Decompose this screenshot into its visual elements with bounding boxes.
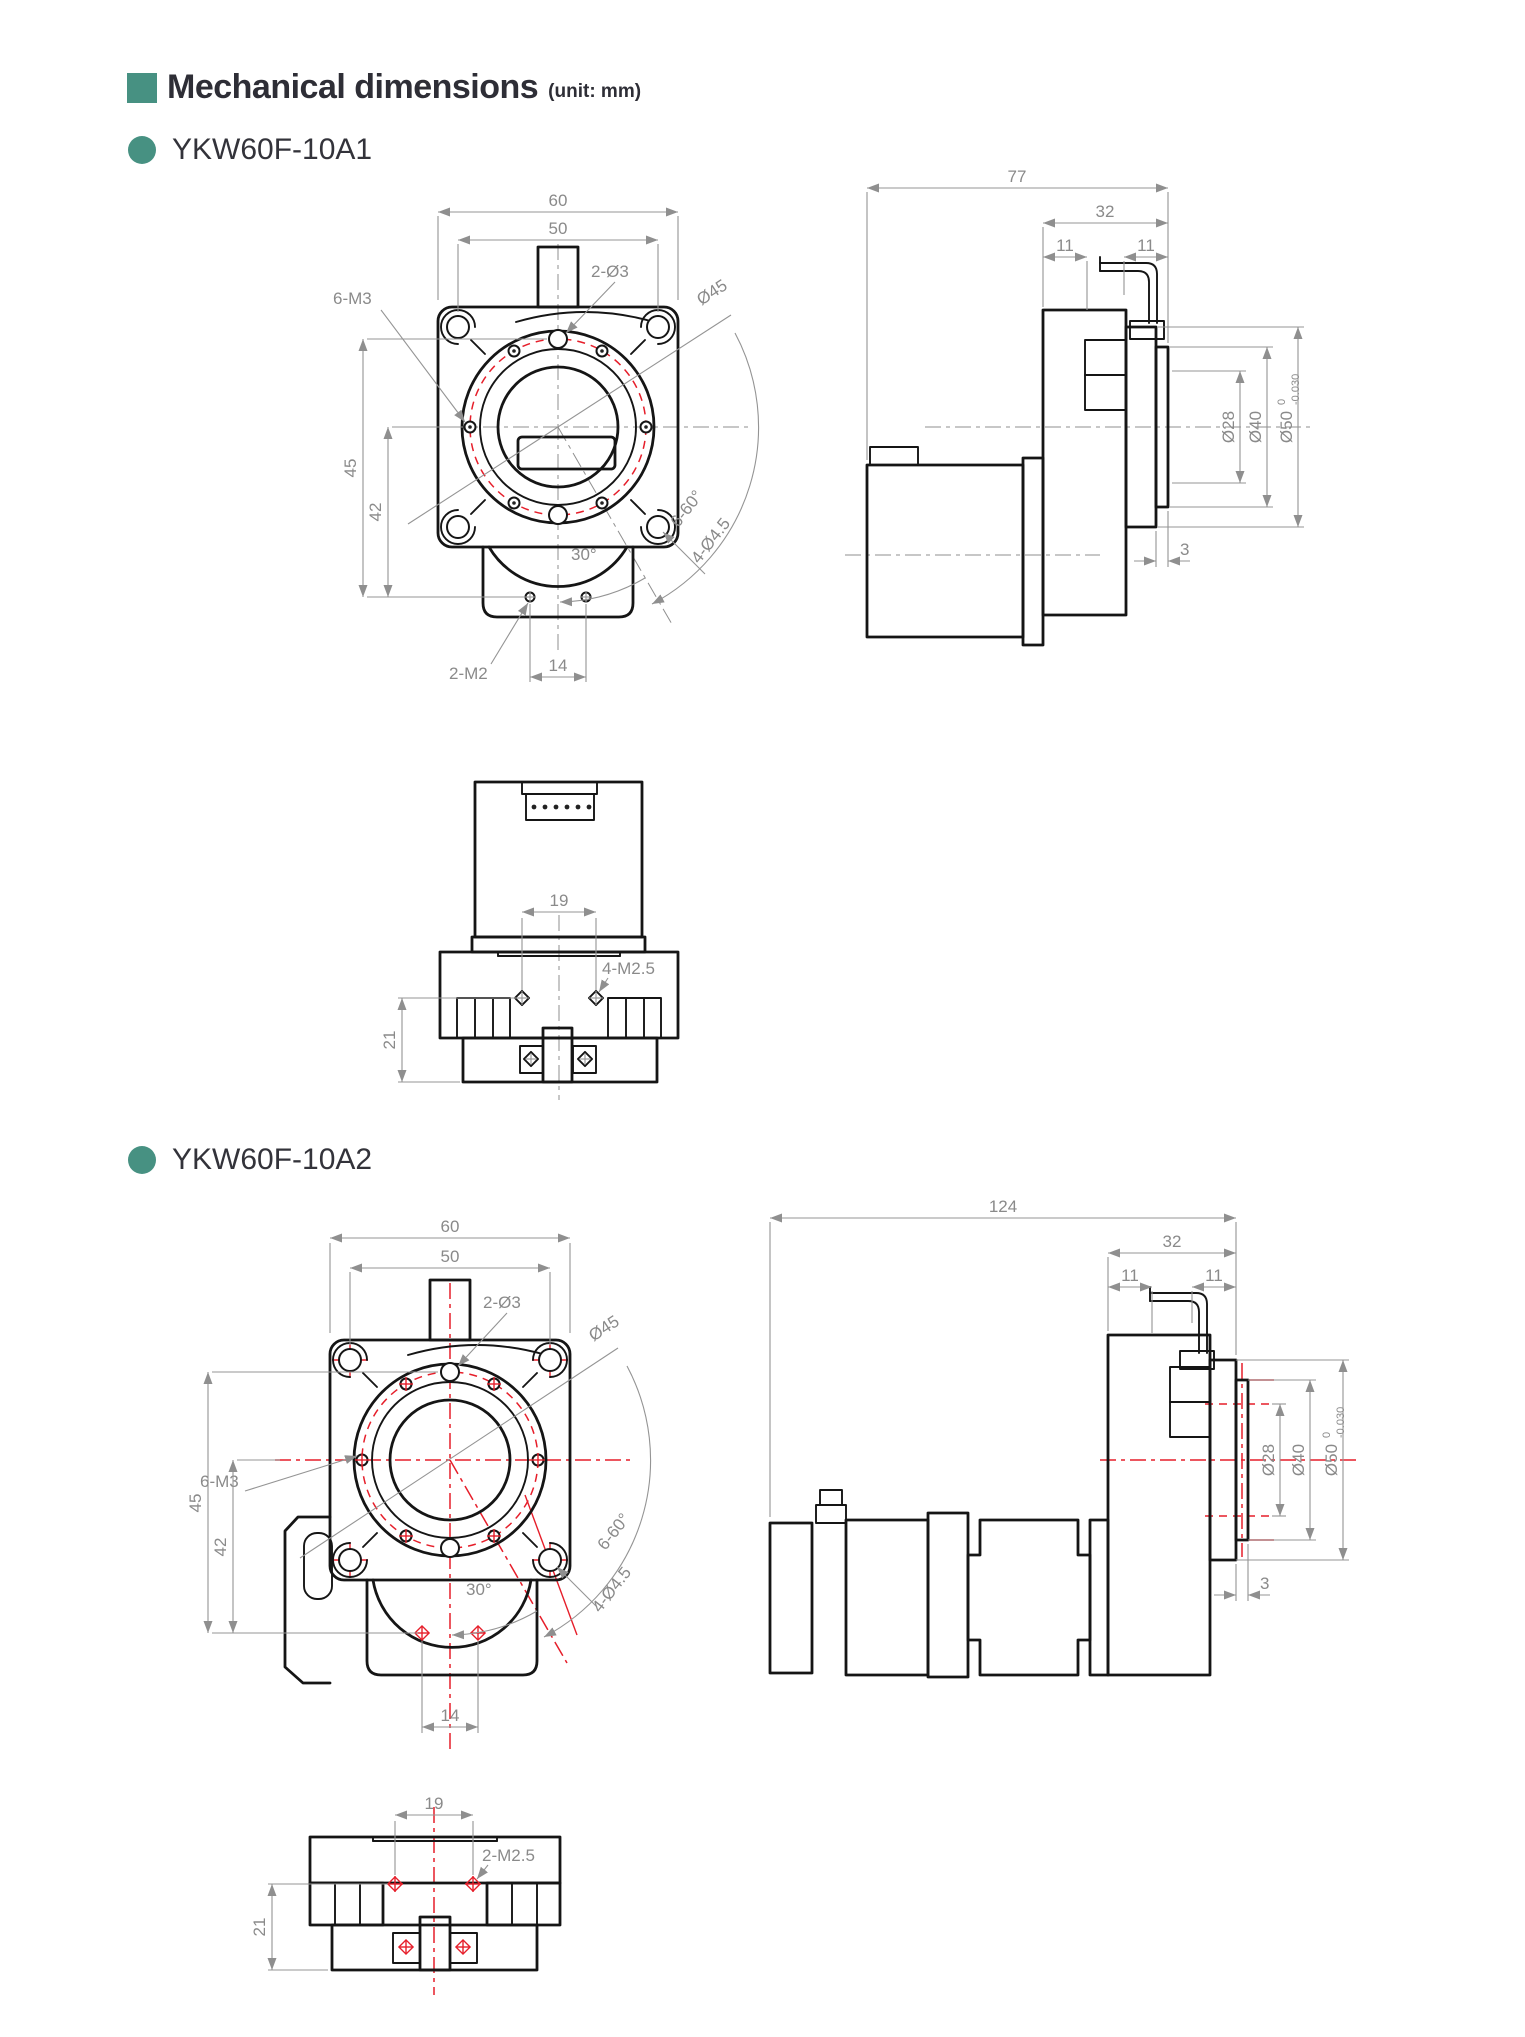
dim-label-60: 60	[441, 1217, 460, 1236]
dimension-11-left: 11	[1043, 236, 1087, 310]
dim-label-45: 45	[341, 459, 360, 478]
section-header-10a1: YKW60F-10A1	[128, 133, 372, 167]
red-centerlines	[1100, 1363, 1360, 1557]
dim-label-3: 3	[1180, 540, 1189, 559]
front-view-ykw60f-10a1: 60 50 2-Ø3 Ø45 6-M3 45 42 30° 6-60° 4-Ø4…	[323, 182, 773, 727]
dim-label-660: 6-60°	[594, 1510, 634, 1554]
bullet-icon	[128, 136, 156, 164]
dim-label-32: 32	[1163, 1232, 1182, 1251]
dim-label-2m2: 2-M2	[449, 664, 488, 683]
side-view-ykw60f-10a1: 77 32 11 11 Ø28 Ø40 Ø50 0 -0.030	[830, 175, 1350, 675]
dim-label-14: 14	[441, 1706, 460, 1725]
section-header-10a2: YKW60F-10A2	[128, 1143, 372, 1177]
label-2xd3: 2-Ø3	[458, 1293, 521, 1366]
section-title-10a2: YKW60F-10A2	[172, 1143, 372, 1177]
flange-outline	[285, 1280, 570, 1683]
label-4m25: 4-M2.5	[599, 959, 655, 992]
dim-label-4d45: 4-Ø4.5	[588, 1563, 635, 1616]
dimension-45: 45	[186, 1372, 438, 1633]
dim-label-4m25: 4-M2.5	[602, 959, 655, 978]
dim-label-11a: 11	[1121, 1266, 1139, 1285]
bottom-view-ykw60f-10a2: 19 2-M2.5 21	[250, 1795, 640, 2037]
dim-label-4d45: 4-Ø4.5	[687, 514, 734, 567]
dim-label-14: 14	[549, 656, 568, 675]
gearbox-body	[1108, 1335, 1248, 1675]
dim-label-d50-tol-up: 0	[1321, 1432, 1333, 1438]
section-title-10a1: YKW60F-10A1	[172, 133, 372, 167]
dim-label-d45: Ø45	[693, 276, 730, 309]
dim-label-124: 124	[989, 1197, 1017, 1216]
dim-label-2d3: 2-Ø3	[591, 262, 629, 281]
dimension-77: 77	[867, 167, 1168, 460]
bullet-icon	[128, 1146, 156, 1174]
dimension-11-left: 11	[1108, 1266, 1152, 1333]
motor-body	[867, 447, 1043, 645]
dim-label-6m3: 6-M3	[333, 289, 372, 308]
dim-label-11b: 11	[1137, 236, 1155, 255]
dimension-21: 21	[250, 1884, 388, 1970]
page-title: Mechanical dimensions	[167, 68, 538, 107]
page-header: Mechanical dimensions (unit: mm)	[127, 68, 641, 107]
dim-label-42: 42	[366, 503, 385, 522]
dim-label-d45: Ø45	[585, 1312, 622, 1345]
dim-label-d28: Ø28	[1219, 411, 1238, 443]
bottom-view-ykw60f-10a1: 19 4-M2.5 21	[380, 760, 710, 1110]
dim-label-d50-tol-dn: -0.030	[1290, 374, 1302, 405]
dim-label-30: 30°	[466, 1580, 492, 1599]
dim-label-d50-tol-up: 0	[1276, 399, 1288, 405]
label-6m3: 6-M3	[200, 1456, 357, 1491]
dimension-11-right: 11	[1124, 236, 1168, 295]
dim-label-19: 19	[425, 1794, 444, 1813]
dim-label-50: 50	[441, 1247, 460, 1266]
dim-label-d28: Ø28	[1259, 1444, 1278, 1476]
dim-label-3: 3	[1260, 1574, 1269, 1593]
dim-label-45: 45	[186, 1494, 205, 1513]
dimension-3: 3	[1134, 511, 1190, 567]
dimension-21: 21	[380, 998, 516, 1082]
dim-label-32: 32	[1096, 202, 1115, 221]
gearbox-body	[1043, 310, 1168, 615]
dim-label-2d3: 2-Ø3	[483, 1293, 521, 1312]
dim-label-21: 21	[380, 1031, 399, 1050]
dim-label-2m25: 2-M2.5	[482, 1846, 535, 1865]
label-2xd3: 2-Ø3	[566, 262, 629, 333]
dimension-19: 19	[395, 1794, 473, 1875]
dim-label-42: 42	[211, 1538, 230, 1557]
connector	[522, 782, 597, 820]
label-2m25: 2-M2.5	[477, 1846, 535, 1879]
dim-label-77: 77	[1008, 167, 1027, 186]
dim-label-30: 30°	[571, 545, 597, 564]
dim-label-60: 60	[549, 191, 568, 210]
header-square-icon	[127, 73, 157, 103]
dim-label-11b: 11	[1205, 1266, 1223, 1285]
dim-label-660: 6-60°	[667, 487, 707, 531]
cable-hook	[1150, 1287, 1214, 1369]
dim-label-21: 21	[250, 1918, 269, 1937]
dim-label-d50-tol-dn: -0.030	[1335, 1407, 1347, 1438]
page-unit: (unit: mm)	[548, 81, 641, 103]
dim-label-50: 50	[549, 219, 568, 238]
angle-30: 30°	[452, 1580, 537, 1635]
dim-label-d50: Ø50	[1277, 411, 1296, 443]
dim-label-19: 19	[550, 891, 569, 910]
front-view-ykw60f-10a2: 60 50 2-Ø3 Ø45 6-M3 45 42 30° 6-60° 4-Ø4…	[170, 1205, 745, 1765]
dim-label-11a: 11	[1056, 236, 1074, 255]
dim-label-d40: Ø40	[1289, 1444, 1308, 1476]
motor-assembly	[770, 1490, 1108, 1677]
angle-660-and-4d45: 6-60° 4-Ø4.5	[652, 333, 759, 604]
dim-label-d40: Ø40	[1246, 411, 1265, 443]
angle-660-and-4d45: 6-60° 4-Ø4.5	[544, 1366, 651, 1637]
dim-label-d50: Ø50	[1322, 1444, 1341, 1476]
side-view-ykw60f-10a2: 124 32 11 11 Ø28 Ø40 Ø50 0 -0.030	[760, 1205, 1405, 1765]
